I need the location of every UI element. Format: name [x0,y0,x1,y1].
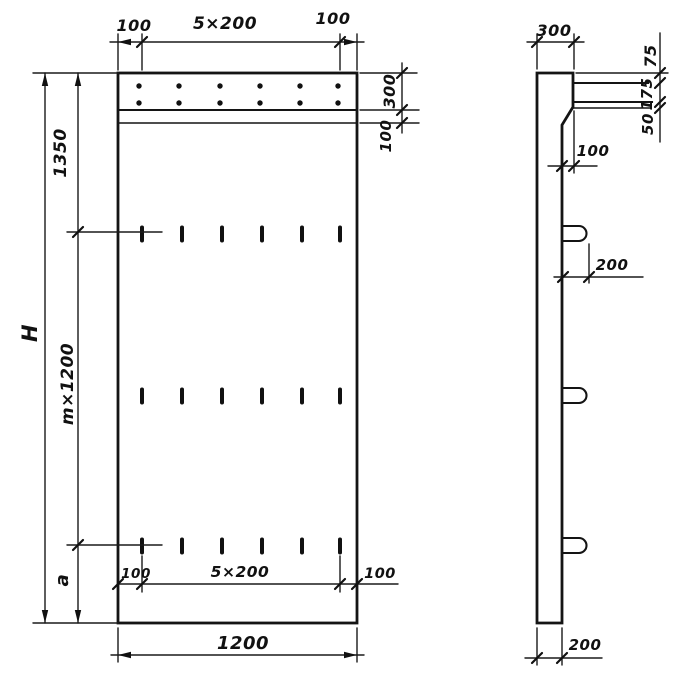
dim-top-width-chain: 100 5×200 100 [110,9,364,70]
dim-bottom-width: 1200 [111,628,364,662]
dim-label-panel-width: 1200 [217,633,269,654]
side-outline [537,73,573,623]
dim-label-top-spacing: 5×200 [193,14,257,34]
lifting-hook [562,226,587,241]
dim-label-hook-length: 200 [596,256,629,274]
dim-label-side-50: 50 [639,113,657,135]
dim-label-top-segment: 1350 [51,128,71,177]
dim-side-hook-length: 200 [554,244,643,283]
dim-label-top-left-offset: 100 [117,16,152,35]
technical-drawing-page: 100 5×200 100 300 100 H 1350 m×1200 a [0,0,700,700]
dim-band-height-chain: 300 100 [360,63,419,152]
anchor-dots [136,83,340,105]
dim-label-inner-right-offset: 100 [364,566,396,582]
dim-label-bottom-segment: a [52,574,73,587]
dim-label-inner-left-offset: 100 [121,566,151,582]
dim-label-side-175: 175 [638,78,656,111]
dim-label-side-offset: 100 [577,142,610,160]
dim-label-overall-height: H [18,324,42,342]
slot-marks [140,226,342,555]
dim-side-right-chain: 75 175 50 [576,33,668,142]
panel-outline [118,73,357,623]
dim-side-ledge-offset: 100 [548,111,609,173]
dim-label-side-top-width: 300 [537,21,572,40]
dim-label-middle-segment: m×1200 [58,343,78,425]
lifting-hook [562,388,587,403]
dim-label-side-thickness: 200 [569,636,602,654]
dim-label-band-height: 300 [380,74,399,109]
dim-label-top-right-offset: 100 [316,9,351,28]
dim-label-band-strip: 100 [377,120,395,153]
dim-label-side-75: 75 [641,44,660,67]
lifting-hook [562,538,587,553]
dim-side-top-width: 300 [527,21,584,69]
front-view [118,73,357,623]
dim-label-inner-spacing: 5×200 [211,563,270,581]
panel-drawing: 100 5×200 100 300 100 H 1350 m×1200 a [0,0,700,700]
dim-inner-bottom-chain: 100 5×200 100 [113,556,398,592]
dim-side-thickness: 200 [525,628,602,665]
